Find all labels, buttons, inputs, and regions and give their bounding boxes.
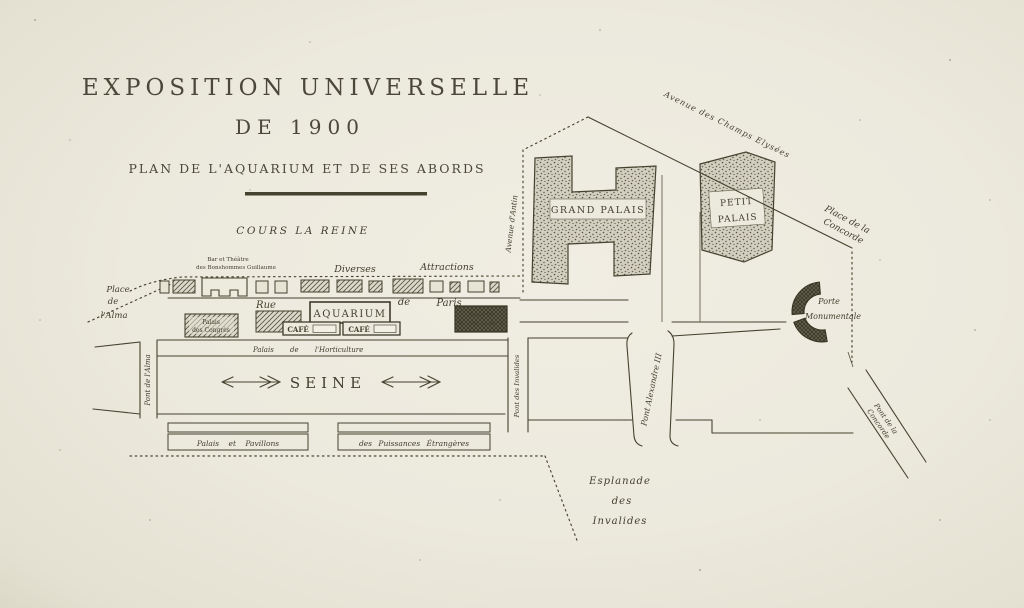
label-place-de-alma: Place de l'Alma xyxy=(100,285,129,321)
label-porte-line1: Porte xyxy=(817,297,840,306)
place-alma-line2: de xyxy=(108,297,118,307)
label-cafe-left: CAFÉ xyxy=(287,325,308,334)
label-esplanade: Esplanade des Invalides xyxy=(588,476,651,527)
south-boundary-dotted xyxy=(130,456,578,543)
palais-ville-de-paris: Palais de la Ville de Paris xyxy=(455,306,507,332)
palais-et-pavillons-block: Palais et Pavillons xyxy=(168,423,308,450)
river-south-bank-east xyxy=(676,420,853,433)
grand-palais: GRAND PALAIS xyxy=(532,156,656,284)
label-cours-la-reine: COURS LA REINE xyxy=(236,225,369,237)
label-palais-pavillons: Palais et Pavillons xyxy=(196,439,279,448)
label-horticulture: Palais de l'Horticulture xyxy=(252,346,363,354)
flow-arrow-right-icon xyxy=(382,376,440,388)
label-pont-alexandre: Pont Alexandre III xyxy=(639,352,664,428)
label-porte-line2: Monumentale xyxy=(804,312,861,321)
theatre-booth-outline xyxy=(202,278,247,296)
map-subtitle: PLAN DE L'AQUARIUM ET DE SES ABORDS xyxy=(128,161,485,176)
booth xyxy=(490,282,499,292)
label-pont-alma: Pont de l'Alma xyxy=(144,354,152,406)
label-pont-invalides: Pont des Invalides xyxy=(513,354,521,418)
subtitle-underline xyxy=(245,192,427,196)
label-diverses: Diverses xyxy=(333,264,376,275)
palais-des-congres: Palais des Congrès xyxy=(185,314,238,337)
booth xyxy=(393,279,423,293)
booth xyxy=(275,281,287,293)
avenue-nicolas-ii-edges xyxy=(662,175,700,322)
label-avenue-antin: Avenue d'Antin xyxy=(503,194,519,253)
label-de: de xyxy=(398,297,410,308)
pont-de-alma: Pont de l'Alma xyxy=(93,340,157,418)
title-block: EXPOSITION UNIVERSELLE DE 1900 PLAN DE L… xyxy=(82,75,534,196)
river-north-bank-east xyxy=(672,329,780,336)
bar-theatre-line2: des Bonshommes Guillaume xyxy=(196,265,277,271)
concorde-shore-link xyxy=(848,352,853,367)
booth xyxy=(430,281,443,292)
label-rue: Rue xyxy=(255,300,276,311)
paper-speckles xyxy=(34,19,991,571)
esplanade-line2: des xyxy=(612,496,632,507)
label-grand-palais: GRAND PALAIS xyxy=(551,205,645,216)
place-alma-line3: l'Alma xyxy=(100,311,127,321)
pont-alexandre-iii: Pont Alexandre III xyxy=(627,331,678,446)
petit-palais: PETIT PALAIS xyxy=(700,152,775,262)
label-bar-theatre: Bar et Théâtre des Bonshommes Guillaume xyxy=(196,256,277,271)
label-champs-elysees: Avenue des Champs Elysées xyxy=(662,89,792,160)
booth xyxy=(450,282,460,292)
label-cafe-right: CAFÉ xyxy=(348,325,369,334)
map-title-line1: EXPOSITION UNIVERSELLE xyxy=(82,75,534,101)
booth xyxy=(301,280,329,292)
palais-congres-line1: Palais xyxy=(202,319,220,326)
booth xyxy=(468,281,484,292)
cafe-right-terrace xyxy=(374,325,396,333)
flow-arrow-left-icon xyxy=(222,376,280,388)
label-seine: SEINE xyxy=(290,374,366,392)
palais-ville-line1: Palais de xyxy=(468,312,494,318)
palais-ville-line2: la Ville de Paris xyxy=(459,321,503,327)
map-title-line2: DE 1900 xyxy=(235,115,365,139)
cours-la-reine-east-edges xyxy=(520,300,786,322)
exposition-map: EXPOSITION UNIVERSELLE DE 1900 PLAN DE L… xyxy=(0,0,1024,608)
esplanade-line3: Invalides xyxy=(592,516,648,527)
booth xyxy=(173,280,195,293)
place-alma-line1: Place xyxy=(105,285,129,295)
label-attractions: Attractions xyxy=(419,262,474,273)
booth xyxy=(337,280,362,292)
pont-des-invalides: Pont des Invalides xyxy=(508,338,528,432)
pont-de-la-concorde: Pont de la Concorde xyxy=(848,370,926,478)
booth xyxy=(369,281,382,292)
label-puissances-etrangeres: des Puissances Étrangères xyxy=(359,439,469,448)
attraction-booths xyxy=(160,278,499,296)
booth xyxy=(256,281,268,293)
map-canvas: EXPOSITION UNIVERSELLE DE 1900 PLAN DE L… xyxy=(0,0,1024,608)
cafe-left-terrace xyxy=(313,325,336,333)
river-banks-mid xyxy=(528,338,632,420)
bar-theatre-line1: Bar et Théâtre xyxy=(207,256,249,263)
esplanade-line1: Esplanade xyxy=(588,476,651,487)
label-place-concorde: Place de la Concorde xyxy=(816,204,871,247)
puissances-etrangeres-block: des Puissances Étrangères xyxy=(338,423,490,450)
label-aquarium: AQUARIUM xyxy=(313,309,387,320)
palais-congres-line2: des Congrès xyxy=(192,327,230,334)
booth xyxy=(160,281,169,293)
porte-monumentale: Porte Monumentale xyxy=(792,282,861,342)
